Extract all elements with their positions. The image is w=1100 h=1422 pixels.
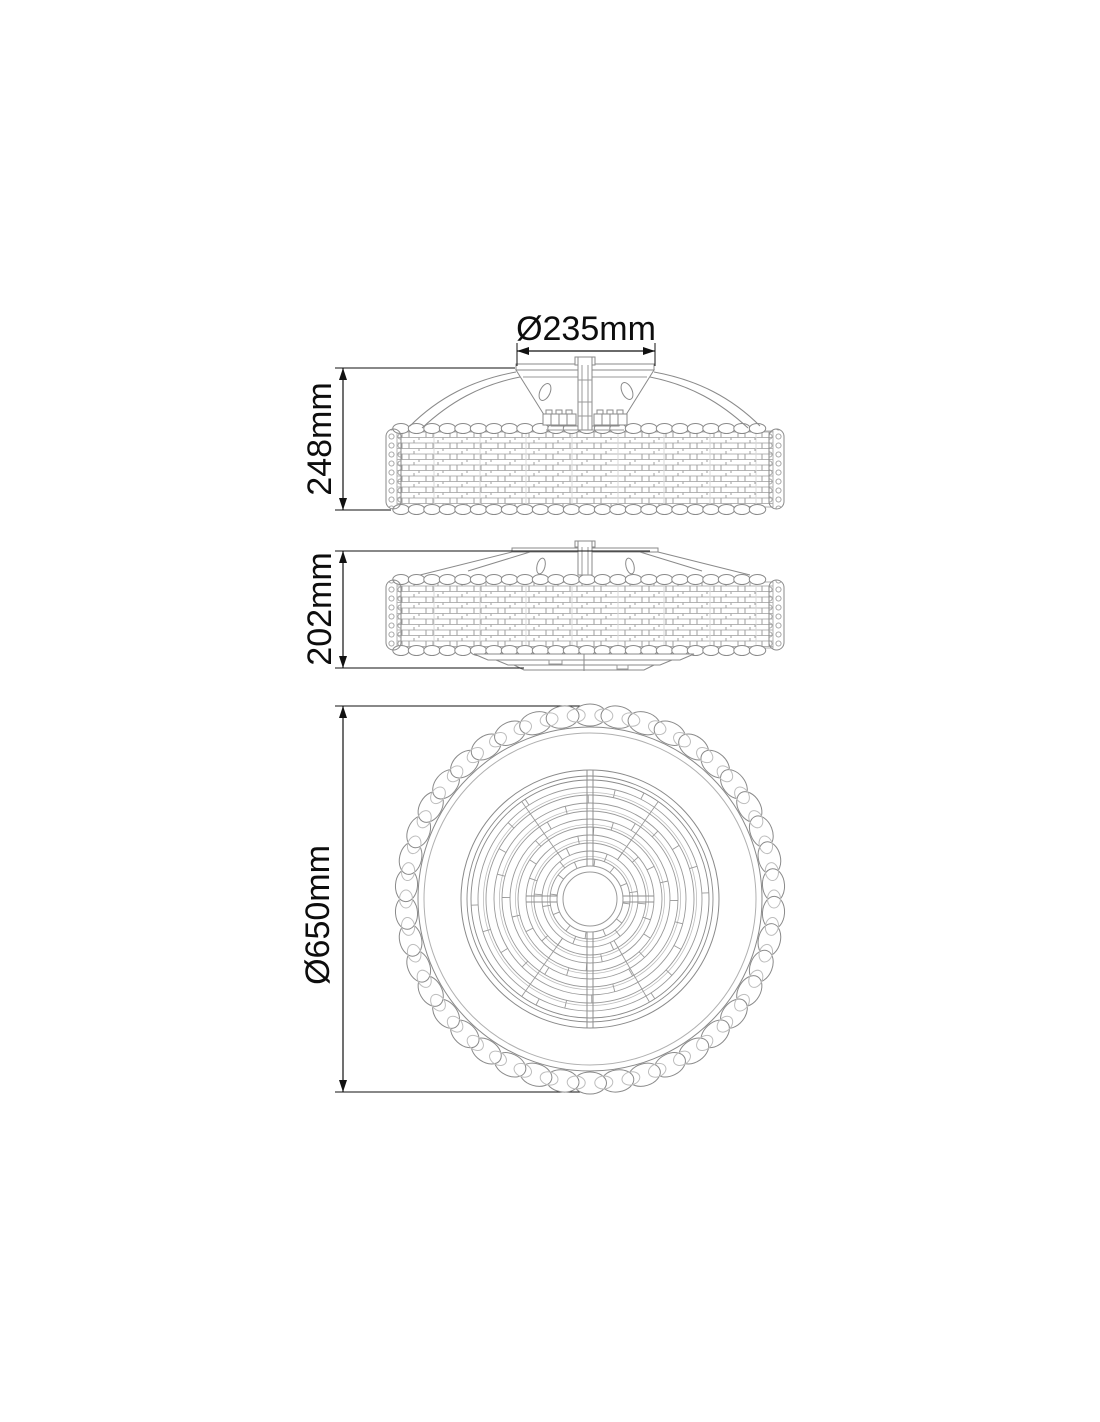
braid-scallop-top — [486, 424, 502, 434]
dim-label-total-height: 248mm — [301, 382, 339, 495]
grille-ring — [542, 851, 638, 947]
dim-label-overall-diameter: Ø650mm — [299, 845, 337, 985]
drum-end-cap-left — [386, 580, 401, 650]
grille-stub — [558, 875, 564, 879]
braid-inner-ring — [424, 733, 756, 1065]
grille-stub — [613, 984, 615, 992]
hanging-hook-right — [624, 557, 636, 574]
grille-stub — [574, 862, 577, 868]
braid-scallop-top — [594, 575, 610, 585]
braid-scallop-bottom — [455, 646, 471, 656]
centre-shaft — [578, 357, 592, 430]
braid-scallop-bottom — [424, 646, 440, 656]
braid-scallop-bottom — [439, 646, 455, 656]
grille-ring-pair — [531, 840, 648, 957]
grille-stub — [499, 849, 506, 853]
grille-stub — [534, 894, 542, 895]
braid-scallop-bottom — [439, 505, 455, 515]
grille-stub — [644, 934, 651, 938]
braid-scallop-bottom — [656, 505, 672, 515]
grille-stub — [675, 922, 683, 924]
grille-ring — [486, 795, 694, 1003]
grille-stub — [545, 968, 549, 975]
grille-stub — [620, 883, 626, 886]
centre-shaft-2 — [578, 541, 592, 575]
braid-scallop-top — [625, 575, 641, 585]
drum-end-cap-left — [386, 429, 401, 509]
grille-stub — [483, 929, 491, 931]
fan-hub-ring — [557, 866, 623, 932]
support-arm-right-outer — [654, 372, 760, 426]
braid-scallop-top — [749, 575, 765, 585]
grille-stub — [530, 860, 537, 864]
grille-stub — [578, 836, 580, 844]
braid-scallop-bottom — [424, 505, 440, 515]
grille-stub — [585, 932, 586, 939]
rattan-shade-body-view — [386, 575, 784, 656]
braid-scallop-bottom — [672, 505, 688, 515]
braid-scallop-top — [532, 575, 548, 585]
grille-stub — [497, 874, 505, 876]
braid-scallop-bottom — [734, 646, 750, 656]
braid-scallop-bottom — [408, 646, 424, 656]
grille-stub — [501, 948, 508, 952]
braid-scallop-top — [424, 424, 440, 434]
grille-stub — [603, 929, 606, 935]
grille-outer-ring — [471, 780, 709, 1018]
grille-rib — [522, 938, 563, 996]
braid-scallop-top — [470, 575, 486, 585]
braid-scallop-top — [718, 575, 734, 585]
grille-stub — [643, 917, 651, 920]
shade-textures — [386, 424, 784, 656]
grille-stub — [525, 799, 529, 805]
braid-scallop-top — [734, 424, 750, 434]
grille-stub — [674, 946, 681, 950]
braid-scallop-top — [439, 575, 455, 585]
grille-stub — [610, 943, 613, 950]
braid-scallop-top — [517, 575, 533, 585]
grille-stub — [610, 867, 614, 873]
braid-scallop-bottom — [408, 505, 424, 515]
grille-outer-ring — [467, 776, 713, 1022]
grille-stub — [536, 999, 539, 1005]
drum-end-cap-right — [769, 429, 784, 509]
braid-scallop-bottom — [548, 505, 564, 515]
dim-label-body-height: 202mm — [301, 552, 339, 665]
support-arm-left-outer — [410, 372, 516, 426]
braid-scallop-top — [501, 424, 517, 434]
fan-hub-ring — [563, 872, 617, 926]
braid-scallop-top — [439, 424, 455, 434]
drum-end-cap-right — [769, 580, 784, 650]
grille-ring — [478, 787, 702, 1011]
grille-stub — [690, 866, 698, 868]
grille-stub — [660, 881, 668, 883]
braid-scallop-bottom — [749, 505, 765, 515]
braid-scallop-bottom — [718, 505, 734, 515]
grille-ring — [534, 843, 646, 955]
grille-stub — [672, 845, 679, 849]
braid-scallop-top — [656, 424, 672, 434]
grille-stub — [641, 793, 644, 799]
braid-scallop-bottom — [517, 505, 533, 515]
braid-scallop-top — [734, 575, 750, 585]
grille-stub — [547, 822, 551, 829]
braid-scallop-top — [625, 424, 641, 434]
grille-stub — [647, 866, 654, 870]
braid-scallop-top — [548, 575, 564, 585]
braid-scallop-top — [408, 575, 424, 585]
braid-inner-ring — [418, 727, 762, 1071]
braid-scallop-top — [656, 575, 672, 585]
braid-scallop-top — [501, 575, 517, 585]
braid-scallop-bottom — [470, 505, 486, 515]
grille-stub — [567, 968, 569, 976]
grille-ring — [502, 811, 678, 987]
grille-stub — [630, 892, 638, 893]
braid-scallop-bottom — [455, 505, 471, 515]
grille-stub — [616, 919, 622, 923]
braid-scallop-top — [610, 575, 626, 585]
grille-stub — [565, 1000, 567, 1008]
hanging-hook-left — [535, 557, 547, 574]
braid-scallop-top — [687, 424, 703, 434]
braid-scallop-top — [517, 424, 533, 434]
technical-drawing-canvas: Ø235mm 248mm 202mm — [0, 0, 1100, 1422]
grille-rib — [618, 802, 659, 860]
braid-scallop-top — [718, 424, 734, 434]
grille-stub — [566, 925, 570, 931]
grille-stub — [594, 859, 595, 866]
braid-scallop-top — [486, 575, 502, 585]
grille-stub — [565, 806, 567, 814]
grille-stub — [613, 790, 615, 798]
braid-scallop-bottom — [641, 505, 657, 515]
grille-stub — [526, 928, 533, 932]
dim-label-mount-diameter: Ø235mm — [516, 310, 656, 348]
grille-stub — [631, 824, 635, 831]
braid-scallop-top — [687, 575, 703, 585]
grille-stub — [651, 993, 655, 999]
grille-stub — [566, 848, 569, 855]
braid-scallop-bottom — [610, 505, 626, 515]
grille-stub — [512, 915, 520, 917]
braid-scallop-bottom — [734, 505, 750, 515]
grille-stub — [604, 854, 607, 862]
grille-ring — [550, 859, 630, 939]
grille-stub — [553, 912, 559, 915]
braid-scallop-top — [579, 575, 595, 585]
view-bottom-plan: Ø650mm — [299, 706, 593, 1092]
braid-scallop-top — [672, 424, 688, 434]
braid-scallop-bottom — [625, 505, 641, 515]
braid-scallop-bottom — [579, 505, 595, 515]
braid-scallop-bottom — [703, 505, 719, 515]
grille-ring — [526, 835, 654, 963]
braid-scallop-bottom — [486, 505, 502, 515]
grille-stub — [611, 823, 613, 831]
braid-scallop-top — [749, 424, 765, 434]
grille-ring — [518, 827, 662, 971]
braid-scallop-top — [641, 424, 657, 434]
braid-scallop-top — [455, 424, 471, 434]
plan-view-decor — [394, 704, 785, 1094]
grille-ring-pair — [547, 856, 632, 941]
braid-scallop-top — [563, 575, 579, 585]
plan-view-graphics — [394, 704, 785, 1094]
braid-scallop-bottom — [687, 505, 703, 515]
drum-weave-body — [397, 431, 773, 507]
braid-scallop-bottom — [532, 505, 548, 515]
braid-scallop-bottom — [563, 505, 579, 515]
braid-scallop-bottom — [594, 505, 610, 515]
grille-ring-pair — [515, 824, 664, 973]
braid-scallop-top — [470, 424, 486, 434]
braid-scallop-bottom — [749, 646, 765, 656]
braid-scallop-top — [641, 575, 657, 585]
grille-stub — [601, 954, 603, 962]
rattan-shade-mounted-view — [386, 424, 784, 515]
braid-scallop-bottom — [718, 646, 734, 656]
drum-weave-body — [397, 582, 773, 648]
braid-scallop-bottom — [703, 646, 719, 656]
grille-stub — [543, 905, 551, 906]
grille-stub — [638, 903, 646, 904]
diffuser-tab-left — [549, 660, 562, 664]
grille-stub — [573, 936, 576, 944]
grille-stub — [530, 878, 538, 881]
diffuser-tab-right — [617, 665, 628, 669]
braid-scallop-top — [703, 424, 719, 434]
braid-scallop-top — [424, 575, 440, 585]
grille-stub — [550, 894, 557, 895]
braid-scallop-top — [455, 575, 471, 585]
grille-stub — [623, 903, 630, 904]
drawing-sheet: Ø235mm 248mm 202mm — [0, 0, 1100, 1422]
braid-scallop-top — [672, 575, 688, 585]
braid-scallop-bottom — [501, 505, 517, 515]
grille-rib — [522, 802, 563, 860]
braid-scallop-top — [703, 575, 719, 585]
